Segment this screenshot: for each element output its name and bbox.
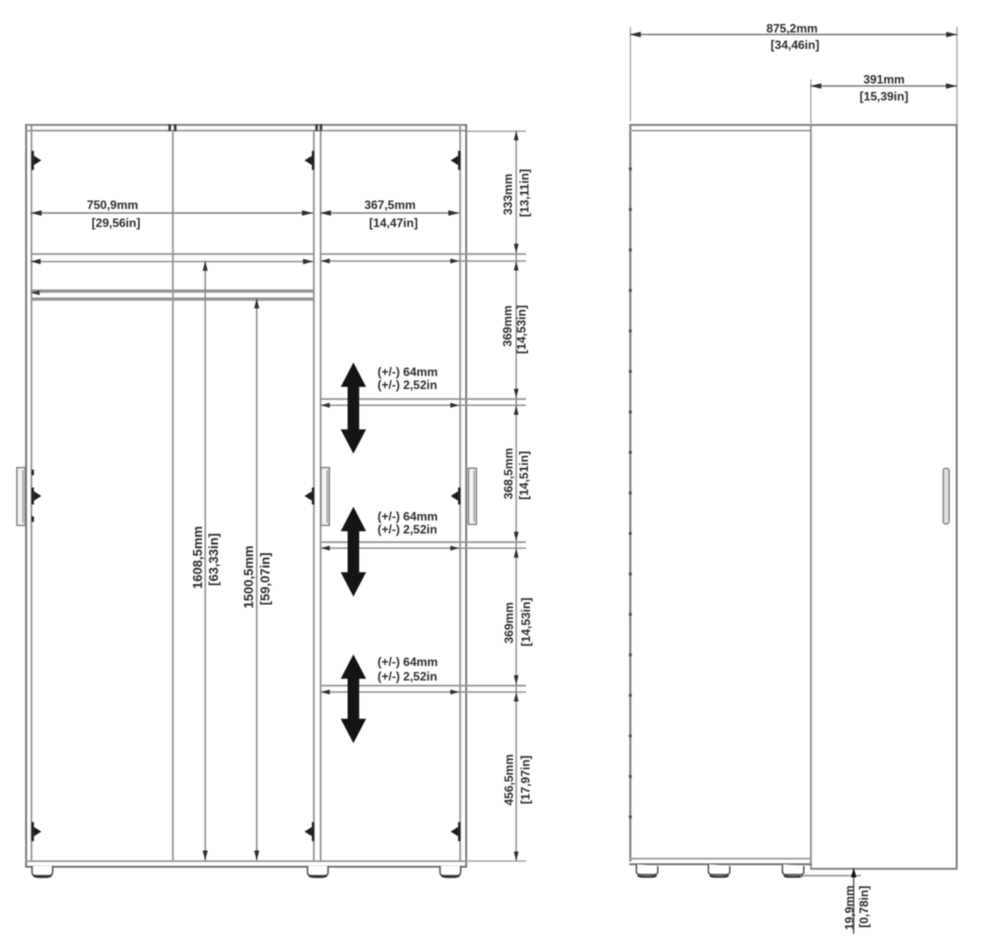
svg-text:(+/-) 64mm: (+/-) 64mm [378, 365, 438, 379]
svg-text:[34,46in]: [34,46in] [771, 38, 820, 52]
svg-text:456,5mm: 456,5mm [502, 754, 516, 805]
svg-text:1500,5mm: 1500,5mm [241, 546, 256, 609]
svg-text:[14,53in]: [14,53in] [515, 305, 529, 354]
svg-text:19,9mm: 19,9mm [843, 885, 857, 930]
svg-text:(+/-) 64mm: (+/-) 64mm [378, 655, 438, 669]
svg-text:333mm: 333mm [501, 174, 515, 215]
svg-text:[0,78in]: [0,78in] [857, 886, 871, 928]
svg-text:875,2mm: 875,2mm [766, 22, 817, 36]
svg-text:1608,5mm: 1608,5mm [190, 526, 205, 589]
svg-text:(+/-) 64mm: (+/-) 64mm [378, 510, 438, 524]
svg-text:(+/-) 2,52in: (+/-) 2,52in [378, 378, 438, 392]
svg-text:367,5mm: 367,5mm [364, 198, 415, 212]
svg-text:[59,07in]: [59,07in] [257, 553, 272, 606]
svg-text:[14,51in]: [14,51in] [517, 451, 531, 500]
svg-text:[14,53in]: [14,53in] [519, 598, 533, 647]
svg-text:[15,39in]: [15,39in] [860, 90, 909, 104]
svg-text:369mm: 369mm [502, 602, 516, 643]
svg-text:[13,11in]: [13,11in] [517, 169, 531, 217]
svg-text:750,9mm: 750,9mm [87, 198, 138, 212]
svg-text:[17,97in]: [17,97in] [519, 755, 533, 804]
svg-text:369mm: 369mm [500, 305, 514, 346]
svg-text:(+/-) 2,52in: (+/-) 2,52in [378, 523, 438, 537]
svg-text:[29,56in]: [29,56in] [92, 216, 141, 230]
svg-text:[63,33in]: [63,33in] [206, 533, 221, 586]
svg-text:(+/-) 2,52in: (+/-) 2,52in [378, 669, 438, 683]
svg-text:391mm: 391mm [863, 73, 904, 87]
svg-text:[14,47in]: [14,47in] [369, 216, 418, 230]
svg-text:368,5mm: 368,5mm [502, 448, 516, 499]
